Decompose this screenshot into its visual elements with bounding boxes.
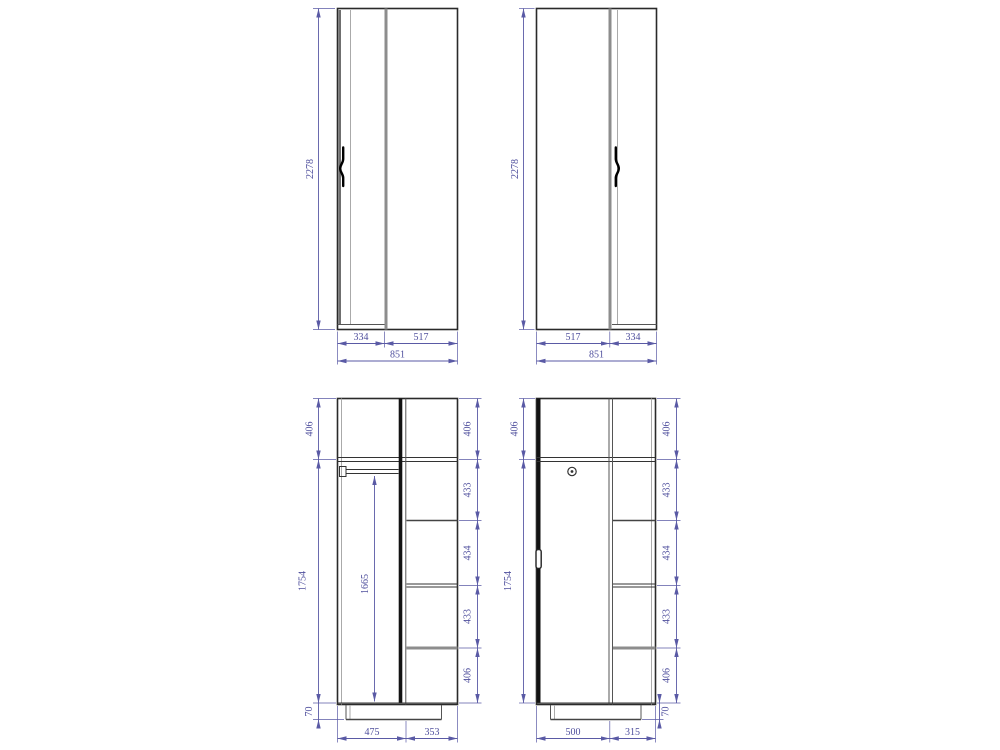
- plinth-dim-label: 70: [304, 707, 315, 717]
- front-view-right: 2278 517 334 851: [510, 9, 657, 365]
- front-view-left: 2278 334 517 851: [305, 9, 458, 365]
- shelf-dim-label: 406: [463, 668, 474, 683]
- section-view-right: 406 1754 406 433 434 433 406 70 500 315: [503, 399, 681, 743]
- plinth-dim-label: 70: [661, 707, 672, 717]
- body-height-dim-label: 1754: [503, 571, 514, 591]
- cabinet-outline: [338, 9, 458, 330]
- shelf-dim-label: 406: [662, 422, 673, 437]
- bottom-width-dim-label: 475: [365, 727, 380, 738]
- rail-bracket-icon: [340, 467, 347, 477]
- section-view-left: 406 1754 70 1665 406 433 434 433 406 475…: [298, 399, 482, 743]
- shelf-dim-label: 406: [662, 668, 673, 683]
- bottom-width-dim-label: 315: [625, 727, 640, 738]
- cabinet-outline: [537, 399, 656, 705]
- height-dim-label: 2278: [510, 159, 521, 179]
- cabinet-outline: [537, 9, 657, 330]
- height-dim-label: 2278: [305, 159, 316, 179]
- top-section-dim-label: 406: [510, 422, 521, 437]
- door-width-dim-label: 334: [354, 332, 369, 343]
- panel-width-dim-label: 517: [566, 332, 581, 343]
- shelf-dim-label: 433: [662, 483, 673, 498]
- cam-lock-icon: [571, 470, 574, 473]
- panel-width-dim-label: 517: [414, 332, 429, 343]
- door-width-dim-label: 334: [626, 332, 641, 343]
- shelf-dim-label: 433: [463, 483, 474, 498]
- cabinet-outline: [338, 399, 458, 705]
- shelf-dim-label: 434: [463, 546, 474, 561]
- shelf-dim-label: 433: [463, 609, 474, 624]
- body-height-dim-label: 1754: [298, 571, 309, 591]
- interior-height-dim-label: 1665: [360, 574, 371, 594]
- technical-drawing: 2278 334 517 851 2278 517 334 851: [0, 0, 1000, 750]
- shelf-dim-label: 433: [662, 609, 673, 624]
- bottom-width-dim-label: 353: [425, 727, 440, 738]
- bottom-width-dim-label: 500: [566, 727, 581, 738]
- shelf-dim-label: 434: [662, 546, 673, 561]
- top-section-dim-label: 406: [305, 422, 316, 437]
- drawing-canvas: 2278 334 517 851 2278 517 334 851: [0, 0, 1000, 750]
- shelf-dim-label: 406: [463, 422, 474, 437]
- total-width-dim-label: 851: [390, 350, 405, 361]
- total-width-dim-label: 851: [589, 350, 604, 361]
- door-handle-edge-icon: [536, 550, 541, 569]
